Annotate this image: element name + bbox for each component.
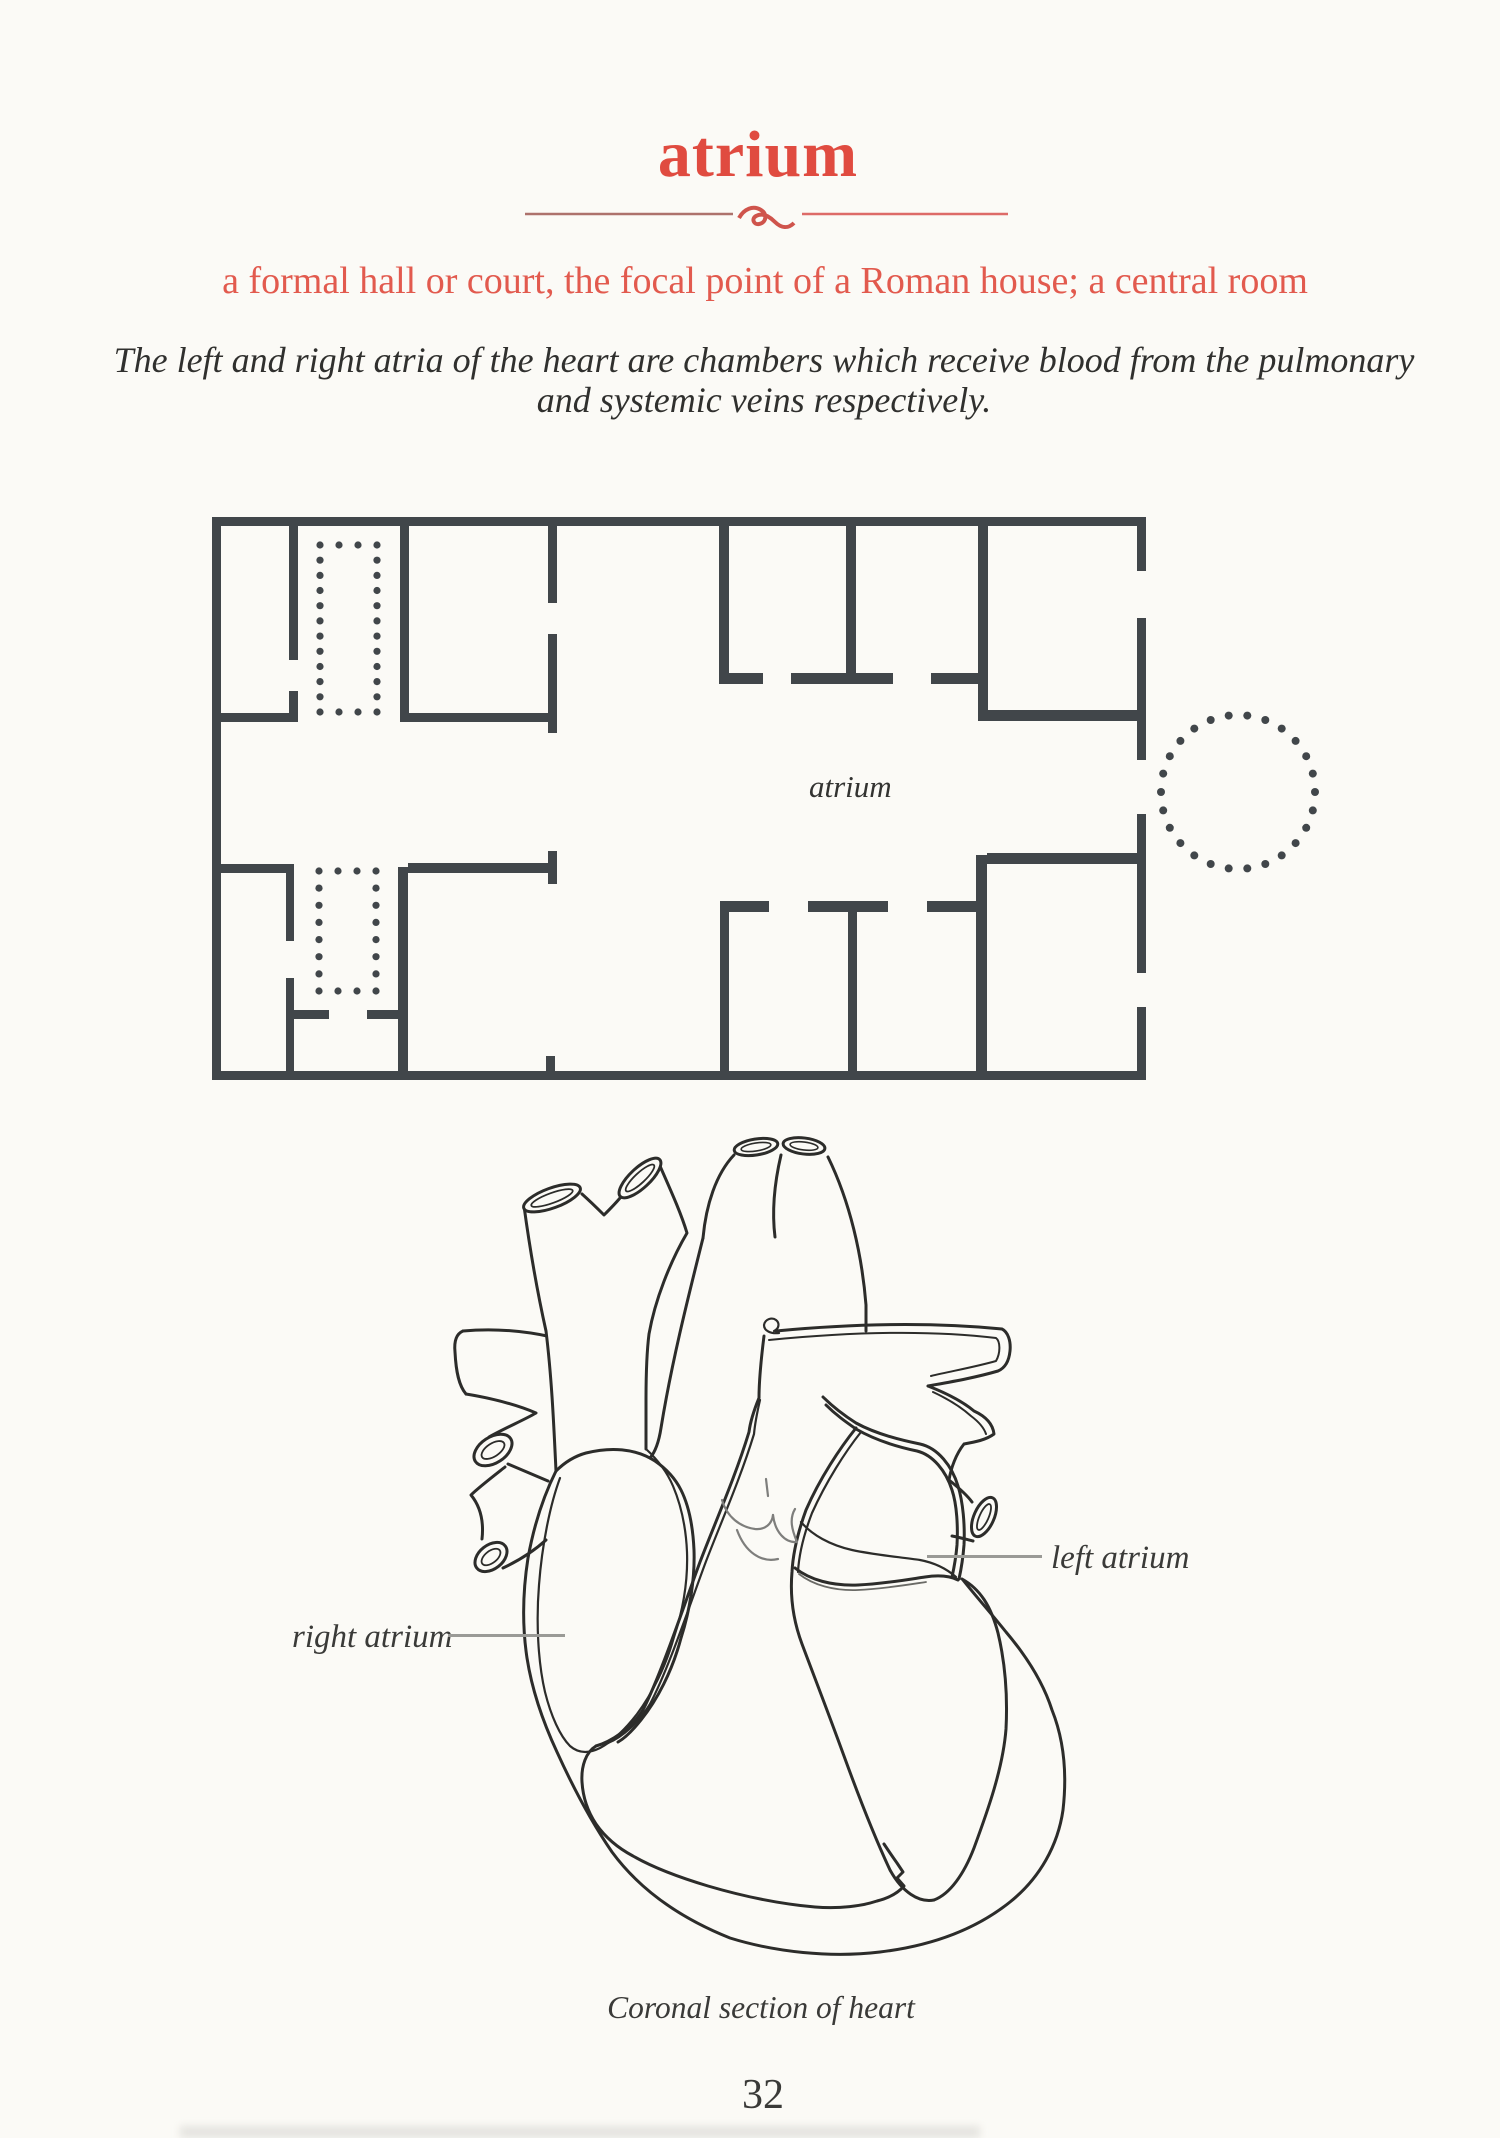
svg-text:atrium: atrium (809, 769, 892, 804)
